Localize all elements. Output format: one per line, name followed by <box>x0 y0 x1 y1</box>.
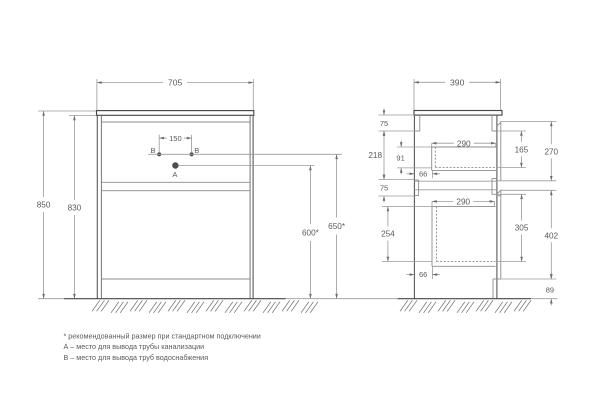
svg-text:650*: 650* <box>328 222 346 231</box>
svg-text:75: 75 <box>380 119 388 128</box>
svg-text:89: 89 <box>546 286 554 295</box>
svg-text:402: 402 <box>544 231 558 240</box>
svg-text:165: 165 <box>515 145 529 154</box>
svg-text:91: 91 <box>396 154 404 163</box>
svg-text:150: 150 <box>169 134 182 143</box>
svg-text:А – место для вывода трубы кан: А – место для вывода трубы канализации <box>64 342 205 351</box>
svg-text:A: A <box>172 170 177 179</box>
svg-text:705: 705 <box>168 78 183 88</box>
svg-text:290: 290 <box>456 198 470 207</box>
svg-text:270: 270 <box>544 147 558 156</box>
svg-text:390: 390 <box>450 77 465 87</box>
svg-text:66: 66 <box>419 270 427 279</box>
svg-text:218: 218 <box>368 151 382 160</box>
svg-text:66: 66 <box>419 169 427 178</box>
svg-text:* рекомендованный размер при с: * рекомендованный размер при стандартном… <box>64 332 261 341</box>
svg-text:75: 75 <box>380 184 388 193</box>
svg-text:290: 290 <box>457 139 471 148</box>
svg-text:B: B <box>150 146 155 155</box>
svg-text:305: 305 <box>515 224 529 233</box>
svg-text:254: 254 <box>381 230 395 239</box>
svg-text:830: 830 <box>68 204 82 213</box>
svg-text:600*: 600* <box>302 229 320 238</box>
svg-text:850: 850 <box>37 201 51 210</box>
svg-text:В – место для вывода труб водо: В – место для вывода труб водоснабжения <box>64 353 209 362</box>
svg-text:B: B <box>194 146 199 155</box>
